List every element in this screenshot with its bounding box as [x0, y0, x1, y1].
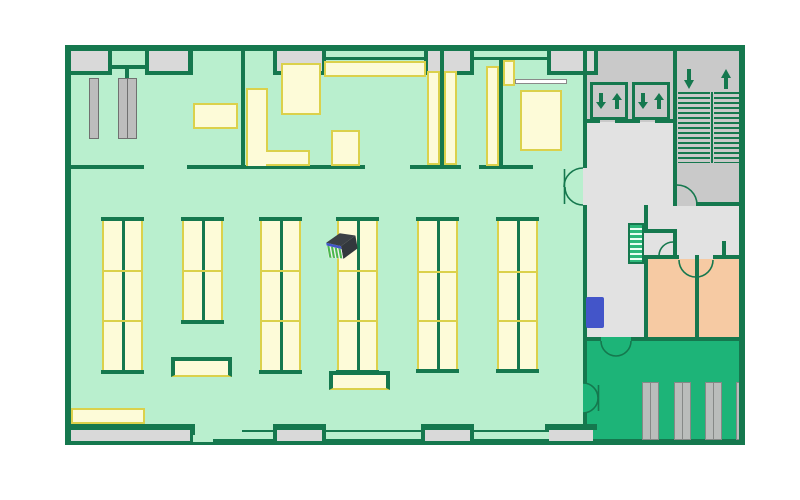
wall [241, 51, 245, 168]
wall-shelf [281, 63, 321, 115]
shelf-unit [417, 220, 458, 370]
window [580, 430, 593, 441]
window [428, 51, 470, 71]
corridor-steps [628, 223, 644, 264]
rack-bar [736, 382, 739, 440]
elevator-arrows-icon [636, 89, 666, 113]
pillar [89, 78, 99, 139]
door-arc [565, 187, 583, 205]
kiosk-marker [586, 297, 604, 328]
wall [695, 255, 699, 341]
wall [583, 337, 601, 341]
building-outline [65, 45, 745, 445]
window-frame [71, 71, 112, 75]
shelf-unit [182, 220, 223, 321]
window [551, 51, 594, 71]
door-arc [564, 168, 583, 187]
wall [71, 165, 144, 169]
wall [644, 255, 648, 341]
rack-bar [650, 382, 659, 440]
elevator-2 [632, 82, 670, 120]
wall-shelf [503, 60, 515, 86]
shelf-table [171, 357, 232, 377]
wall-shelf [427, 71, 440, 165]
wall [470, 430, 549, 432]
window-frame [145, 71, 193, 75]
window-frame [421, 430, 425, 441]
wall [322, 430, 425, 432]
window-frame [470, 430, 474, 441]
stair-divider [711, 92, 713, 163]
wall [583, 205, 587, 383]
wall-shelf [324, 61, 426, 77]
display-table [520, 90, 562, 151]
wall-shelf [486, 66, 499, 166]
shelf-table [329, 371, 390, 390]
rack-bar [713, 382, 722, 440]
wall [410, 165, 461, 169]
shelf-unit [102, 220, 143, 371]
window [549, 430, 583, 441]
window [71, 51, 108, 71]
wall [696, 202, 739, 206]
wall-shelf [246, 88, 268, 166]
wall [242, 430, 277, 432]
entry-gap [193, 435, 213, 448]
stairs-up-arrow-icon [721, 68, 731, 90]
rack-bar [682, 382, 691, 440]
wall [644, 255, 679, 259]
shelf-unit [260, 220, 301, 371]
shelf-unit [497, 220, 538, 370]
wall [322, 57, 424, 60]
wall [631, 337, 739, 341]
window-frame [273, 430, 277, 441]
wall-shelf [266, 150, 310, 166]
room-area [648, 259, 739, 341]
stairs-down-arrow-icon [684, 68, 694, 90]
wall-shelf [331, 130, 360, 166]
elevator-1 [590, 82, 628, 120]
wall [583, 51, 587, 168]
stair-flight-down [678, 92, 710, 163]
window [71, 430, 190, 441]
wall [713, 255, 739, 259]
window-frame [322, 430, 326, 441]
shelf-rack-marker[interactable] [323, 228, 362, 263]
window [149, 51, 188, 71]
window [277, 430, 322, 441]
pillar [127, 78, 137, 139]
wall-shelf [444, 71, 457, 165]
stair-flight-up [714, 92, 739, 163]
counter-bar [515, 79, 567, 84]
wall-shelf [193, 103, 238, 129]
shelf-table [71, 408, 145, 424]
elevator-arrows-icon [594, 89, 624, 113]
floor-plan-map [0, 0, 800, 500]
wall [673, 51, 677, 206]
shelf-rack-icon [323, 228, 362, 263]
window [425, 430, 470, 441]
window-frame [547, 71, 598, 75]
